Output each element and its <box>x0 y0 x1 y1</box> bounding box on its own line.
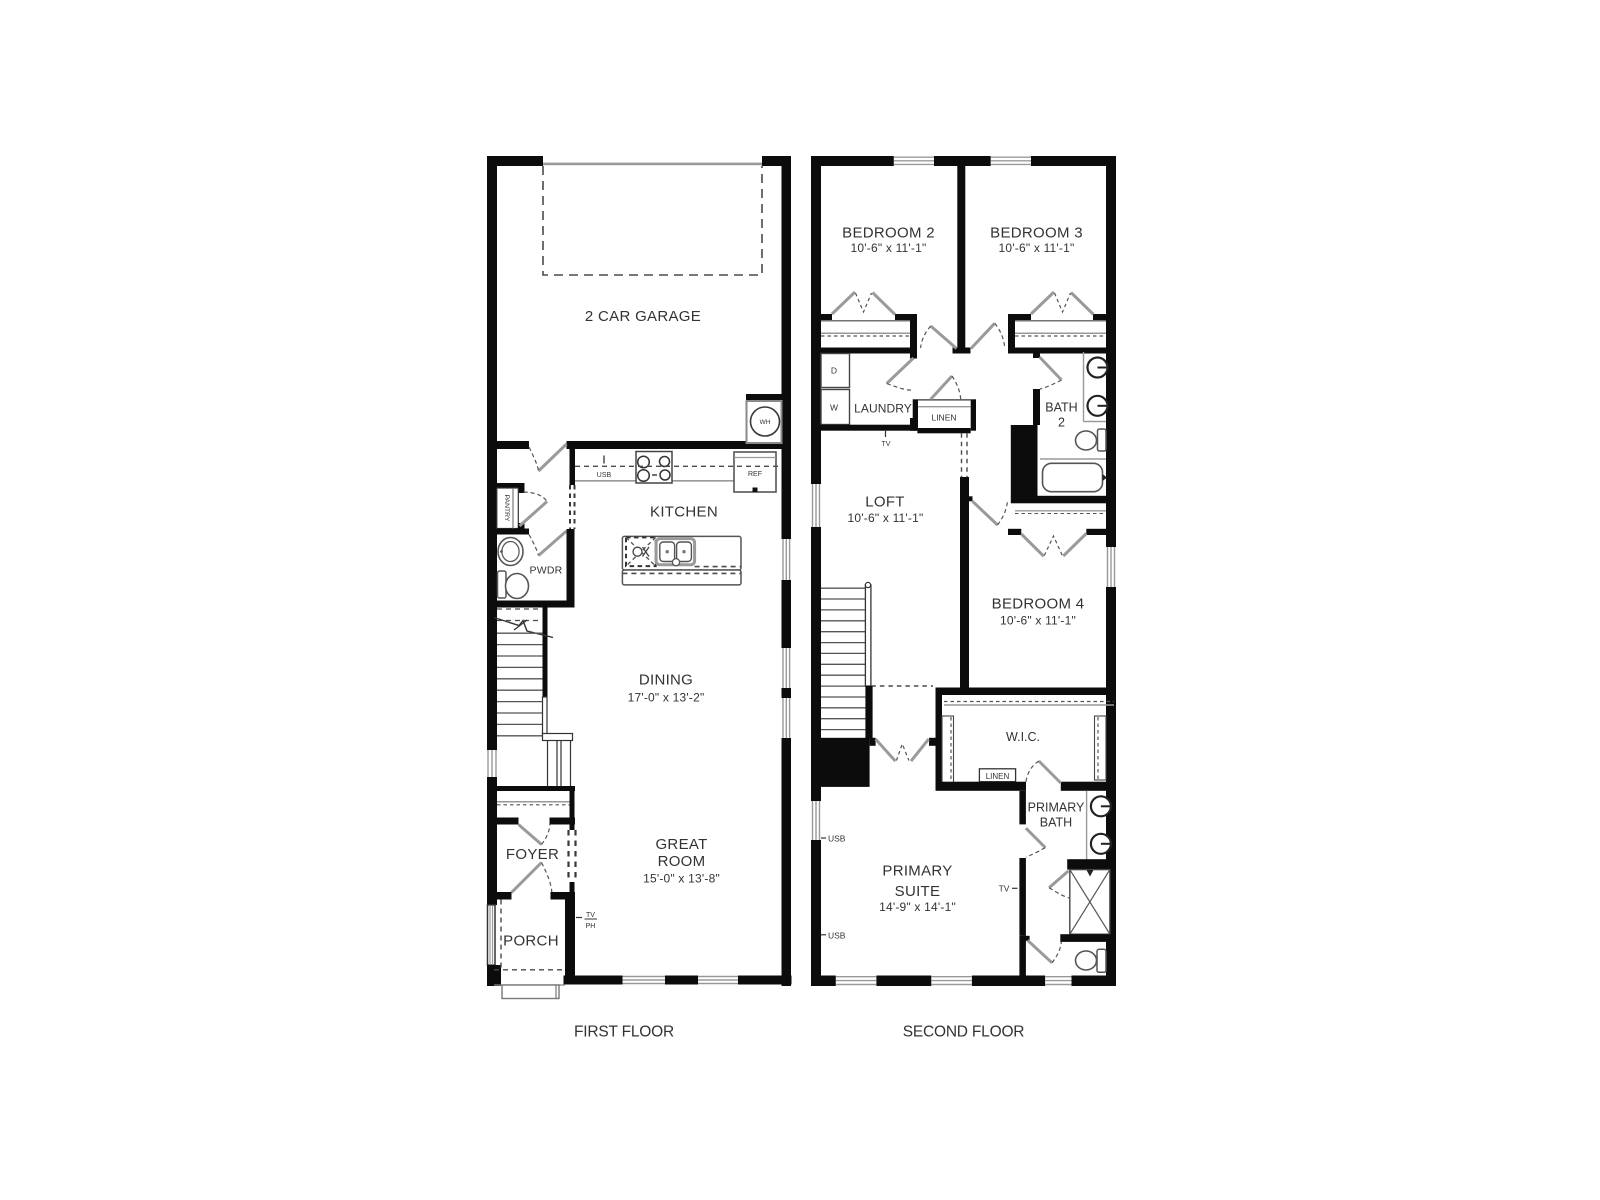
svg-text:14'-9" x 14'-1": 14'-9" x 14'-1" <box>879 900 956 914</box>
svg-text:10'-6" x 11'-1": 10'-6" x 11'-1" <box>848 511 924 525</box>
svg-text:BEDROOM 4: BEDROOM 4 <box>992 596 1085 613</box>
svg-text:LINEN: LINEN <box>931 413 956 423</box>
svg-text:PH: PH <box>586 923 596 930</box>
svg-text:W.I.C.: W.I.C. <box>1006 730 1040 744</box>
svg-text:17'-0" x 13'-2": 17'-0" x 13'-2" <box>628 691 705 705</box>
svg-text:PANTRY: PANTRY <box>503 495 510 522</box>
svg-text:TV: TV <box>882 441 891 448</box>
svg-text:SECOND FLOOR: SECOND FLOOR <box>903 1024 1025 1041</box>
svg-text:D: D <box>831 366 837 376</box>
svg-text:USB: USB <box>828 834 846 844</box>
svg-text:WH: WH <box>760 419 771 426</box>
svg-text:GREAT: GREAT <box>655 836 707 853</box>
svg-text:BATH: BATH <box>1045 401 1077 415</box>
svg-text:DINING: DINING <box>639 672 693 689</box>
svg-text:PORCH: PORCH <box>503 933 559 950</box>
svg-text:TV: TV <box>999 884 1010 894</box>
svg-text:10'-6" x 11'-1": 10'-6" x 11'-1" <box>999 241 1075 255</box>
svg-text:15'-0" x 13'-8": 15'-0" x 13'-8" <box>643 872 720 886</box>
svg-text:10'-6" x 11'-1": 10'-6" x 11'-1" <box>851 241 927 255</box>
svg-text:FOYER: FOYER <box>506 846 559 863</box>
svg-text:REF: REF <box>748 471 762 478</box>
svg-text:PRIMARY: PRIMARY <box>1028 801 1085 815</box>
svg-text:W: W <box>830 403 838 413</box>
svg-text:ROOM: ROOM <box>658 853 706 870</box>
svg-text:USB: USB <box>597 472 612 479</box>
svg-text:PRIMARY: PRIMARY <box>882 863 952 880</box>
svg-text:LINEN: LINEN <box>986 772 1010 781</box>
svg-text:2 CAR GARAGE: 2 CAR GARAGE <box>585 308 701 325</box>
svg-text:TV: TV <box>586 912 595 919</box>
svg-text:FIRST FLOOR: FIRST FLOOR <box>574 1024 674 1041</box>
svg-text:LAUNDRY: LAUNDRY <box>854 402 912 416</box>
svg-text:PWDR: PWDR <box>530 565 563 577</box>
svg-text:USB: USB <box>828 930 846 940</box>
svg-text:BATH: BATH <box>1040 816 1072 830</box>
svg-text:2: 2 <box>1058 416 1065 430</box>
svg-text:10'-6" x 11'-1": 10'-6" x 11'-1" <box>1000 614 1076 628</box>
svg-text:LOFT: LOFT <box>865 494 905 511</box>
svg-text:KITCHEN: KITCHEN <box>650 504 718 521</box>
svg-text:BEDROOM 2: BEDROOM 2 <box>842 225 935 242</box>
svg-text:SUITE: SUITE <box>895 883 941 900</box>
svg-text:BEDROOM 3: BEDROOM 3 <box>990 225 1083 242</box>
